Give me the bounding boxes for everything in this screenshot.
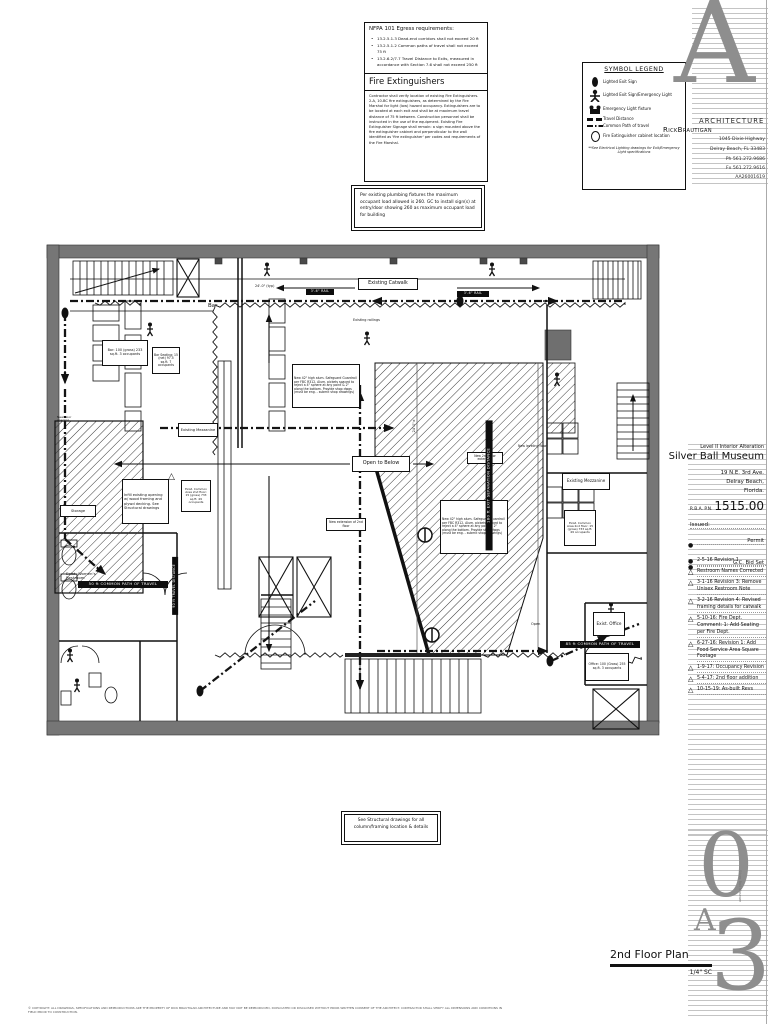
revision-triangle-icon bbox=[688, 598, 697, 613]
egress-notes-box: NFPA 101 Egress requirements: 13.2.5.1.3… bbox=[364, 22, 488, 182]
issued-label: Issued: bbox=[690, 522, 764, 529]
common-area-tag-right: Exist. Common Area 2nd floor: 15 (gross)… bbox=[564, 510, 596, 546]
revision-triangle-icon bbox=[688, 641, 697, 663]
project-number-label: R.B.A. P.N. bbox=[690, 507, 712, 512]
sheet-title: 2nd Floor Plan bbox=[610, 948, 714, 961]
legend-label: Fire Extinguisher cabinet location bbox=[603, 134, 670, 139]
plan-labels: Bar Bar: 100 (gross) 233 sq.ft. 3 occupa… bbox=[45, 243, 661, 743]
legend-label: Travel Distance bbox=[603, 117, 634, 122]
storage-label: Storage bbox=[60, 505, 96, 517]
firm-name-architecture: ARCHITECTURE bbox=[699, 117, 767, 125]
revision-triangle-icon bbox=[688, 665, 697, 673]
nfpa-item: 13.2.6.2/7.7 Travel Distance to Exits, m… bbox=[377, 56, 483, 67]
legend-row: Lighted Exit Sign bbox=[587, 77, 681, 87]
infill-opening-note: Infill existing opening w/ wood framing … bbox=[122, 479, 169, 524]
floor-extension-note-2: New extension of 2nd floor bbox=[326, 518, 366, 531]
new-door-opening-note: New door opening bbox=[57, 416, 81, 423]
common-path-line-icon bbox=[587, 125, 603, 127]
stair-open-label: Open bbox=[531, 623, 540, 627]
emergency-light-fixture-icon bbox=[587, 105, 603, 115]
revision-triangle-icon bbox=[168, 465, 175, 483]
legend-row: Lighted Exit Sign/Emergency Light bbox=[587, 89, 681, 102]
legend-row: Emergency Light fixture bbox=[587, 105, 681, 115]
bar-seating-tag: Bar Seating: 15 (net) 97.5 sq.ft. 7 occu… bbox=[152, 347, 180, 374]
project-scope: Level II Interior Alteration bbox=[660, 444, 764, 450]
firm-name: RickBrautigan bbox=[632, 126, 712, 134]
firm-license: AA26001619 bbox=[690, 175, 765, 180]
occupant-load-note: Per existing plumbing fixtures the maxim… bbox=[355, 189, 481, 223]
legend-label: Lighted Exit Sign bbox=[603, 80, 637, 85]
revision-triangle-icon bbox=[688, 676, 697, 684]
firm-phone: Ph 561.272.9686 bbox=[690, 157, 765, 162]
legend-title: SYMBOL LEGEND bbox=[583, 63, 685, 75]
legend-row: Travel Distance bbox=[587, 117, 681, 122]
sheet-big-three: 3 bbox=[710, 908, 770, 1004]
existing-mezzanine-label-right: Existing Mezzanine bbox=[562, 473, 610, 490]
guardrail-note-lower: New 42" high alum. Safeguard Guardrail p… bbox=[440, 500, 508, 554]
open-to-below-label: Open to Below bbox=[352, 456, 410, 472]
nfpa-item: 13.2.5.1.2 Common paths of travel shall … bbox=[377, 43, 483, 54]
project-address-line3: Florida. bbox=[690, 488, 764, 494]
exit-sign-emergency-light-icon bbox=[587, 89, 603, 102]
drawing-sheet: NFPA 101 Egress requirements: 13.2.5.1.3… bbox=[0, 0, 770, 1024]
revision-triangle-icon bbox=[688, 580, 697, 595]
project-address-line1: 19 N.E. 3rd Ave. bbox=[690, 470, 764, 476]
fire-extinguisher-note: Contractor shall verify location of exis… bbox=[365, 91, 487, 149]
revision-row: 6-27-16: Revision 1: Add Food Service Ar… bbox=[688, 641, 766, 663]
firm-address-line1: 1045 Dixie Highway bbox=[690, 137, 765, 142]
revision-list: 2-5-16 Revision 1 Restroom Names Correct… bbox=[688, 558, 766, 698]
sheet-edge-line bbox=[766, 0, 767, 1024]
revision-triangle-icon bbox=[688, 687, 697, 695]
bar-area-tag: Bar: 100 (gross) 233 sq.ft. 3 occupants bbox=[102, 340, 148, 366]
exit-separation-tag: 180 ft EXIT SEPARATION DISTANCE bbox=[486, 420, 493, 550]
structural-note: See Structural drawings for all column/f… bbox=[345, 815, 437, 834]
travel-50ft-tag: 50 ft COMMON PATH OF TRAVEL bbox=[78, 581, 168, 588]
sheet-scale: 1/4" SC bbox=[612, 969, 712, 976]
travel-90ft-tag: 90 ft TRAVEL DISTANCE bbox=[172, 557, 178, 615]
exit-sign-icon bbox=[587, 77, 603, 87]
nfpa-title: NFPA 101 Egress requirements: bbox=[365, 23, 487, 33]
rail-height-tag-right: 3'-6" RAIL bbox=[457, 291, 489, 297]
revision-row: 2-5-16 Revision 1 bbox=[688, 558, 766, 566]
revision-row: 10-15-19: As-built Revs bbox=[688, 687, 766, 695]
existing-mezzanine-label-left: Existing Mezzanine bbox=[178, 423, 218, 437]
rail-height-tag-left: 3'-6" RAIL bbox=[306, 289, 334, 295]
nfpa-item: 13.2.5.1.3 Dead-end corridors shall not … bbox=[377, 36, 483, 41]
travel-distance-line-icon bbox=[587, 118, 603, 121]
revision-triangle-icon bbox=[688, 616, 697, 638]
fire-extinguisher-heading: Fire Extinguishers bbox=[365, 73, 487, 91]
revision-row: 5-4-17: 2nd floor addition bbox=[688, 676, 766, 684]
issued-item: Permit bbox=[688, 532, 764, 551]
existing-catwalk-label: Existing Catwalk bbox=[358, 278, 418, 290]
revision-row: 3-1-16 Revision 3: Remove Unisex Restroo… bbox=[688, 580, 766, 595]
dimension-label-typ: 24'-0" (typ) bbox=[255, 285, 274, 289]
issued-dot-icon bbox=[688, 532, 697, 551]
bar-room-label: Bar bbox=[208, 303, 217, 309]
common-area-tag-left: Exist. Common Area 2nd floor: 15 (gross)… bbox=[181, 480, 211, 512]
revision-dot-icon bbox=[688, 558, 697, 566]
womens-restroom-label: Exist. Women's Restroom bbox=[66, 572, 106, 581]
structural-note-box: See Structural drawings for all column/f… bbox=[344, 814, 438, 842]
leveling-floor-note: New leveling floor bbox=[518, 445, 560, 449]
copyright-fine-print: © COPYRIGHT: ALL DRAWINGS, SPECIFICATION… bbox=[28, 1007, 508, 1014]
travel-85ft-tag: 85 ft COMMON PATH OF TRAVEL bbox=[560, 641, 640, 648]
fire-extinguisher-cabinet-icon bbox=[587, 131, 603, 142]
office-area-tag: Office: 100 (Gross) 255 sq.ft. 3 occupan… bbox=[585, 653, 629, 681]
firm-logo-a: A bbox=[674, 0, 755, 100]
revision-row: Restroom Names Corrected bbox=[688, 569, 766, 577]
sheet-big-zero: 0 bbox=[698, 822, 754, 910]
dimension-label-vertical: 24'-0"± bbox=[413, 401, 417, 451]
occupant-load-note-box: Per existing plumbing fixtures the maxim… bbox=[354, 188, 482, 228]
project-address-line2: Delray Beach, bbox=[690, 479, 764, 485]
legend-footnote: **See Electrical Lighting drawings for E… bbox=[583, 144, 685, 157]
project-number: 1515.00 bbox=[714, 500, 764, 512]
project-number-row: R.B.A. P.N. 1515.00 bbox=[688, 500, 764, 512]
office-label: Exist. Office bbox=[593, 612, 625, 636]
revision-triangle-icon bbox=[688, 569, 697, 577]
firm-fax: Fx 561.272.9616 bbox=[690, 166, 765, 171]
plot-stamp-vertical-text: Silver Ball Museum bbox=[738, 870, 742, 902]
revision-row: 1-9-17: Occupancy Revision bbox=[688, 665, 766, 673]
legend-label: Lighted Exit Sign/Emergency Light bbox=[603, 93, 672, 98]
revision-row: 5-10-16: Fire Dept. Comment: 1: Add Seat… bbox=[688, 616, 766, 638]
sheet-title-underline bbox=[610, 964, 712, 967]
firm-address-line2: Delray Beach, FL 33483 bbox=[690, 147, 765, 152]
guardrail-note-upper: New 42" high alum. Safeguard Guardrail p… bbox=[292, 364, 360, 408]
existing-railings-label: Existing railings bbox=[353, 319, 391, 323]
legend-label: Emergency Light fixture bbox=[603, 107, 651, 112]
revision-row: 3-2-16 Revision 4: Revised framing detai… bbox=[688, 598, 766, 613]
